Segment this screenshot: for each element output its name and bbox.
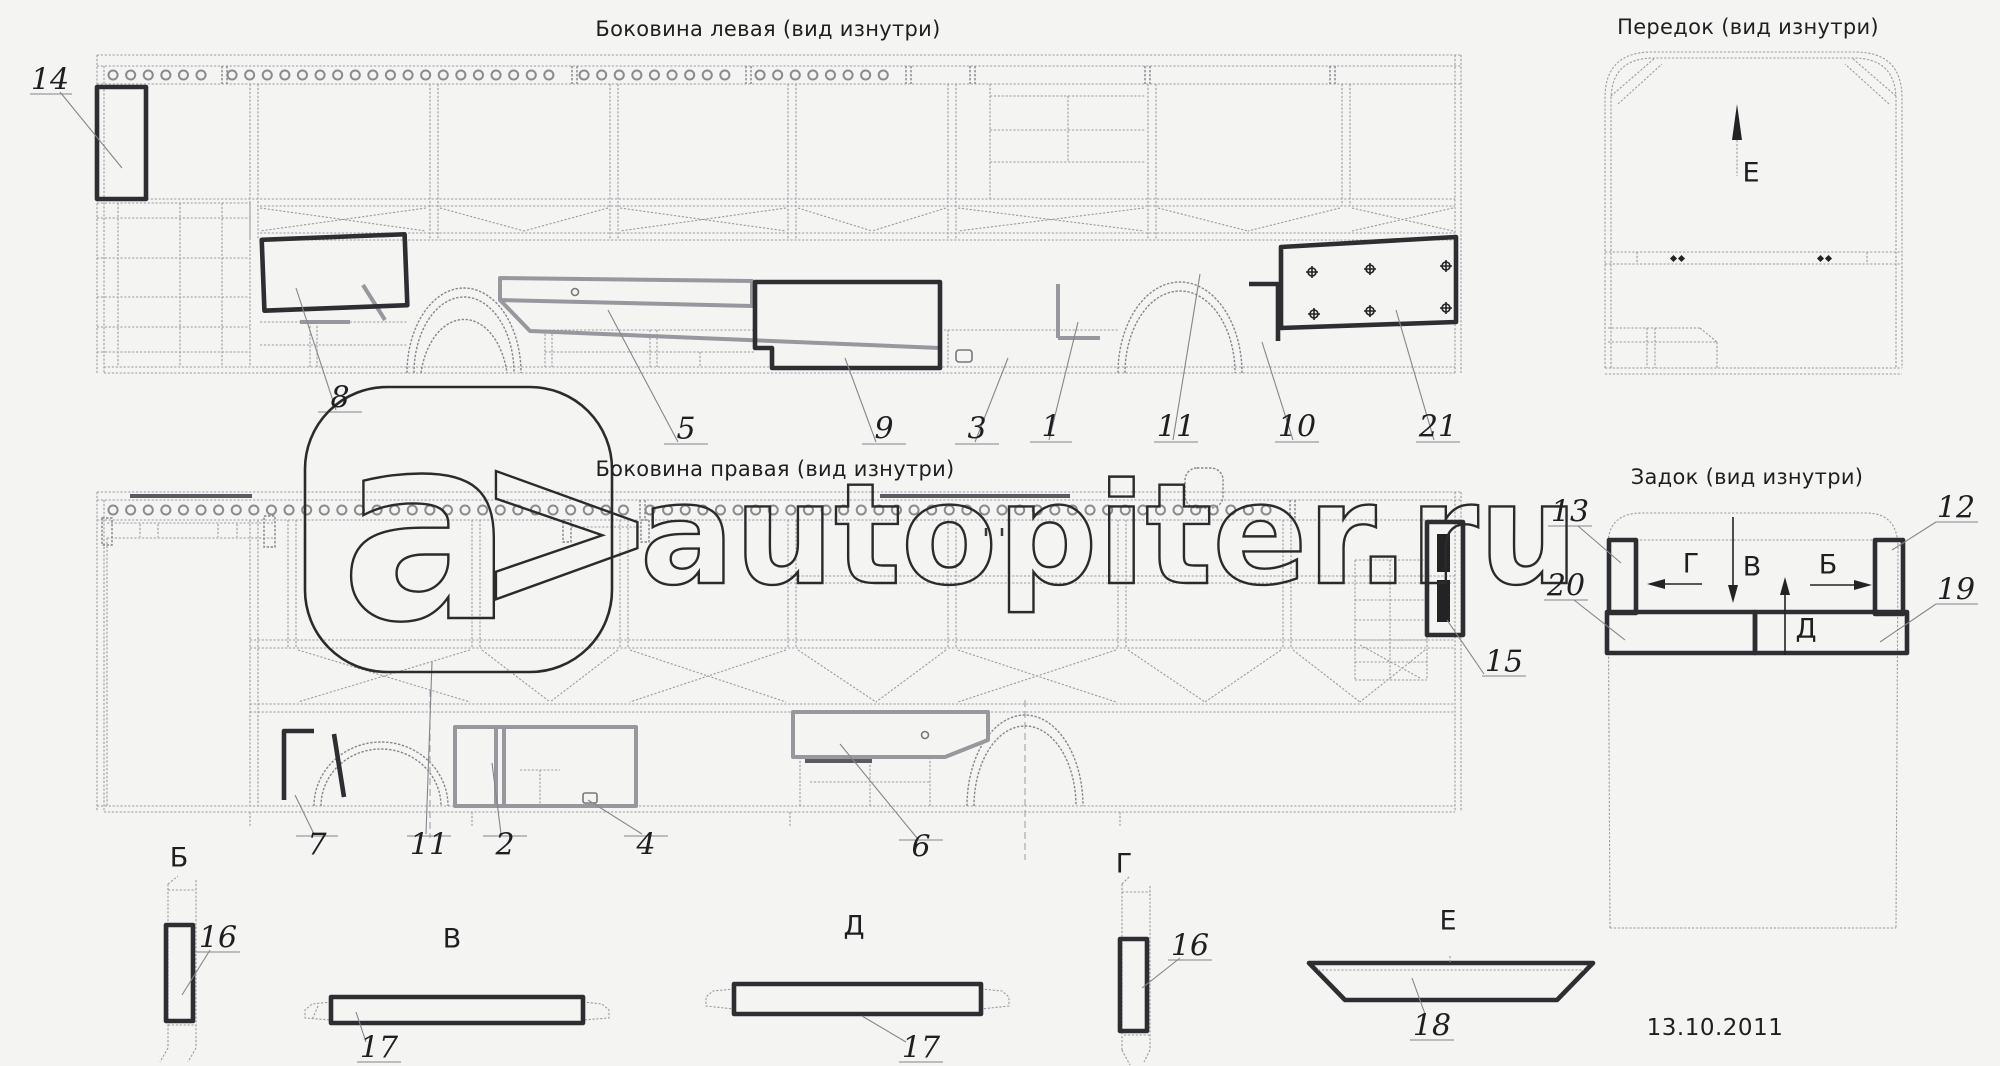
part-label-18: 18 bbox=[1413, 1009, 1451, 1044]
part-label-10: 10 bbox=[1278, 410, 1316, 445]
part-17-shape-d bbox=[734, 984, 981, 1014]
part-label-7: 7 bbox=[307, 828, 326, 863]
part-label-17v: 17 bbox=[360, 1031, 398, 1066]
part-label-9: 9 bbox=[874, 412, 893, 447]
part-label-6: 6 bbox=[911, 830, 930, 865]
part-18-shape bbox=[1309, 963, 1593, 1000]
section-letter-v: В bbox=[443, 924, 462, 955]
part-label-20: 20 bbox=[1547, 569, 1585, 604]
rivet-band bbox=[113, 66, 1335, 84]
parts-catalog-drawing-page: a > autopiter.ru Боковина левая (вид изн… bbox=[0, 0, 2000, 1066]
part-20-shape bbox=[1607, 612, 1755, 653]
watermark: a > autopiter.ru bbox=[305, 379, 1578, 679]
part-label-13: 13 bbox=[1551, 495, 1589, 530]
section-letter-g: Г bbox=[1116, 849, 1132, 880]
part-label-17d: 17 bbox=[902, 1031, 940, 1066]
part-12-shape bbox=[1875, 540, 1903, 614]
part-21-fasteners bbox=[1306, 260, 1452, 320]
part-9-shape bbox=[755, 282, 940, 368]
part-17-shape-v bbox=[331, 997, 583, 1023]
drawing-date: 13.10.2011 bbox=[1647, 1015, 1784, 1041]
part-4-shape bbox=[455, 727, 636, 806]
part-2-shape bbox=[496, 727, 504, 806]
rear-direction-b: Б bbox=[1819, 550, 1838, 581]
part-label-19: 19 bbox=[1937, 573, 1975, 608]
part-label-12: 12 bbox=[1937, 491, 1975, 526]
front-view-direction-letter: Е bbox=[1742, 158, 1759, 189]
part-label-1: 1 bbox=[1041, 410, 1060, 445]
part-label-11a: 11 bbox=[1157, 410, 1195, 445]
left-sidewall-frame bbox=[97, 55, 1461, 373]
section-letter-e: Е bbox=[1439, 906, 1456, 937]
front-view-frame bbox=[1605, 52, 1902, 374]
part-label-15: 15 bbox=[1485, 645, 1523, 680]
part-19-shape bbox=[1755, 612, 1907, 653]
part-label-11b: 11 bbox=[410, 828, 448, 863]
part-label-3: 3 bbox=[967, 412, 986, 447]
rear-direction-g: Г bbox=[1683, 549, 1699, 580]
part-7-shape bbox=[284, 731, 344, 800]
part-13-shape bbox=[1609, 540, 1636, 613]
section-letter-d: Д bbox=[843, 911, 864, 942]
part-label-16b: 16 bbox=[199, 921, 237, 956]
part-label-16g: 16 bbox=[1171, 929, 1209, 964]
part-label-8: 8 bbox=[330, 381, 349, 416]
bus-body-frame-drawing: a > autopiter.ru bbox=[0, 0, 2000, 1066]
rear-view-title: Задок (вид изнутри) bbox=[1631, 465, 1864, 489]
left-sidewall-title: Боковина левая (вид изнутри) bbox=[595, 17, 940, 41]
part-label-5: 5 bbox=[676, 412, 695, 447]
part-6-shape bbox=[793, 712, 988, 757]
part-10-shape bbox=[1249, 284, 1278, 341]
rear-direction-d: Д bbox=[1795, 614, 1816, 645]
part-16-shape-g bbox=[1120, 939, 1147, 1031]
part-16-shape-b bbox=[166, 925, 193, 1021]
part-label-14: 14 bbox=[31, 63, 69, 98]
right-sidewall-title: Боковина правая (вид изнутри) bbox=[595, 457, 954, 481]
part-label-21: 21 bbox=[1419, 410, 1457, 445]
part-label-2: 2 bbox=[495, 828, 514, 863]
rear-direction-v: В bbox=[1743, 552, 1762, 583]
part-8-shape bbox=[262, 234, 408, 310]
direction-arrow-E bbox=[1732, 104, 1742, 140]
part-14-shape bbox=[97, 87, 146, 199]
watermark-logo-chevron: > bbox=[472, 397, 661, 660]
part-label-4: 4 bbox=[636, 828, 655, 863]
section-letter-b: Б bbox=[170, 843, 189, 874]
front-view-title: Передок (вид изнутри) bbox=[1617, 15, 1879, 39]
